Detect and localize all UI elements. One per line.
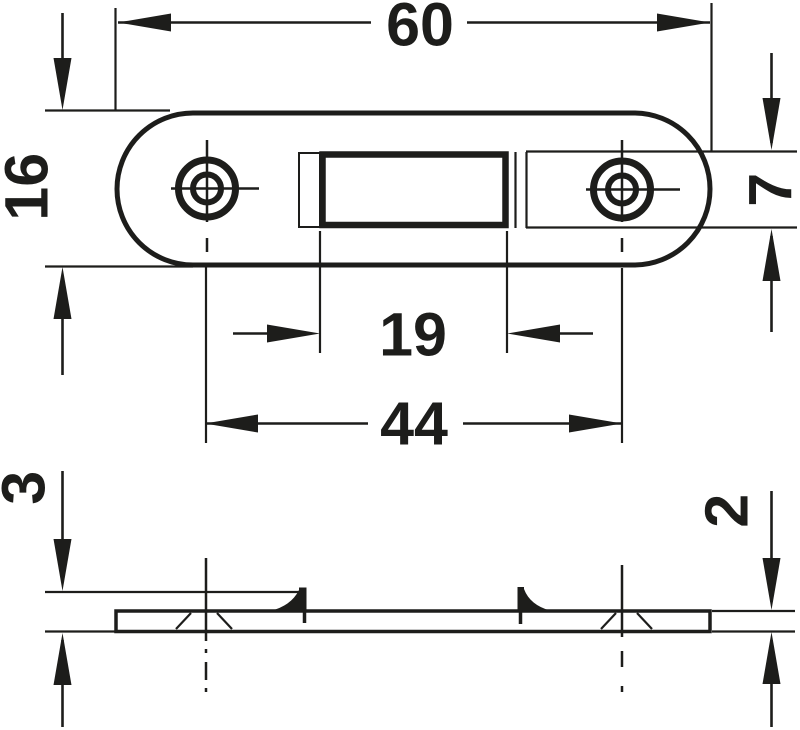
drawing-canvas: 60 16 7 19 44 3 2 [0, 0, 800, 730]
dim-label-plate-width: 60 [386, 0, 454, 55]
dim-label-slot-width: 19 [379, 304, 447, 365]
top-view [45, 3, 797, 443]
dim-label-recess-height: 7 [741, 173, 800, 207]
arrowhead [54, 267, 72, 319]
dim-label-overall-height: 3 [0, 471, 55, 505]
arrowhead [118, 14, 171, 32]
dimension-plate-thickness [763, 491, 781, 727]
arrowhead [763, 632, 781, 684]
dimension-overall-height [54, 471, 72, 727]
arrowhead [569, 415, 622, 433]
arrowhead [54, 539, 72, 591]
arrowhead [763, 98, 781, 150]
arrowhead [507, 325, 560, 343]
arrowhead [657, 14, 710, 32]
arrowhead [54, 58, 72, 110]
dim-label-hole-spacing: 44 [380, 393, 448, 454]
tab-claw [518, 587, 551, 611]
arrowhead [763, 229, 781, 281]
arrowhead [763, 558, 781, 610]
arrowhead [205, 415, 258, 433]
arrowhead [267, 325, 320, 343]
side-view [45, 471, 795, 727]
arrowhead [54, 633, 72, 685]
dim-label-plate-thickness: 2 [697, 494, 758, 528]
dim-label-plate-height: 16 [0, 153, 58, 221]
